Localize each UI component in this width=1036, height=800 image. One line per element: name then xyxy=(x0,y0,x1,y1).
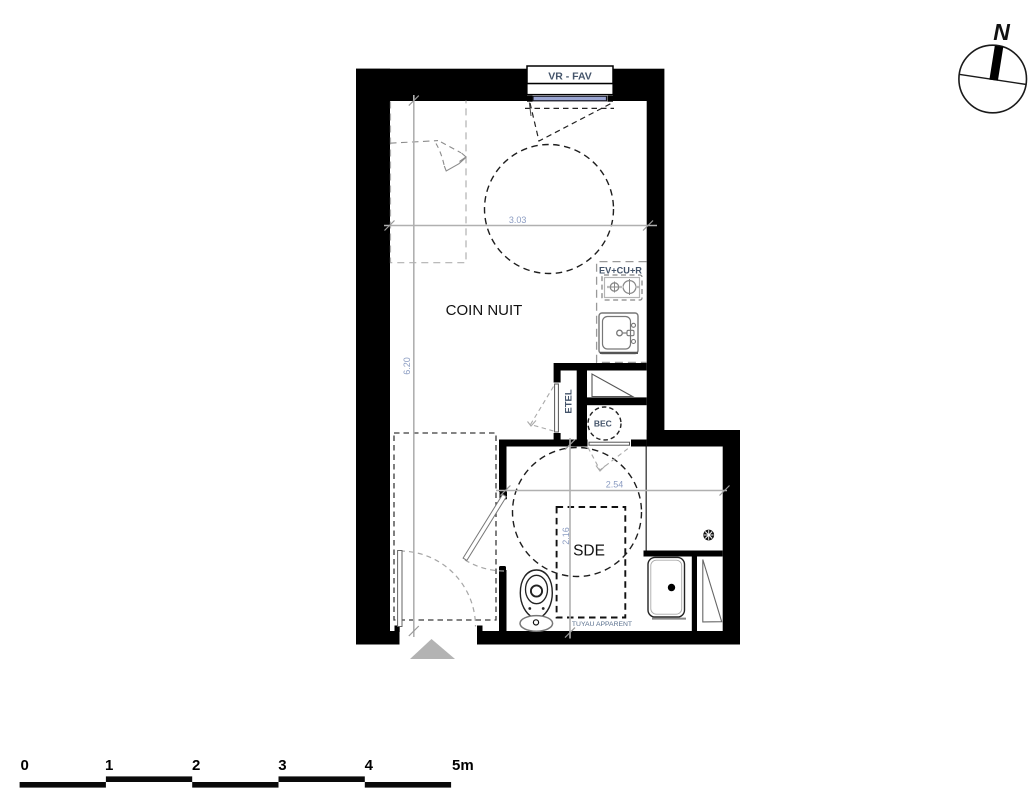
svg-text:COIN NUIT: COIN NUIT xyxy=(446,302,523,319)
svg-text:2.16: 2.16 xyxy=(561,527,571,545)
svg-text:2: 2 xyxy=(192,757,200,774)
svg-text:2.54: 2.54 xyxy=(606,480,624,490)
svg-text:6.20: 6.20 xyxy=(402,357,412,375)
svg-text:3.03: 3.03 xyxy=(509,215,527,225)
svg-text:5m: 5m xyxy=(452,757,474,774)
svg-text:0: 0 xyxy=(21,757,29,774)
svg-text:1: 1 xyxy=(105,757,113,774)
svg-text:BEC: BEC xyxy=(594,418,612,428)
svg-text:VR - FAV: VR - FAV xyxy=(548,70,592,82)
svg-text:3: 3 xyxy=(278,757,286,774)
svg-text:EV+CU+R: EV+CU+R xyxy=(599,266,642,276)
svg-text:4: 4 xyxy=(365,757,374,774)
svg-text:ETEL: ETEL xyxy=(563,389,574,413)
svg-text:TUYAU APPARENT: TUYAU APPARENT xyxy=(572,621,632,628)
svg-text:SDE: SDE xyxy=(573,543,605,560)
svg-text:N: N xyxy=(993,19,1010,45)
